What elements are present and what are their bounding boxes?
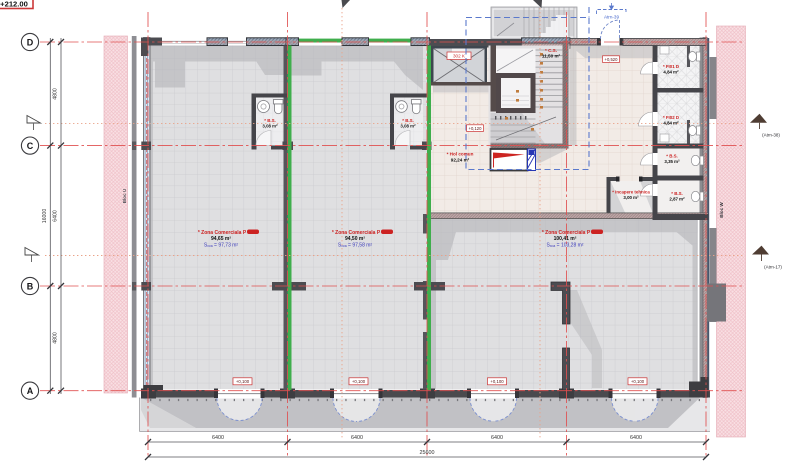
svg-text:* FI01 D: * FI01 D bbox=[663, 64, 679, 69]
svg-text:+0,100: +0,100 bbox=[236, 379, 250, 384]
svg-text:4800: 4800 bbox=[53, 332, 59, 344]
svg-text:+212.00: +212.00 bbox=[0, 0, 28, 9]
svg-text:* B.S.: * B.S. bbox=[666, 154, 677, 159]
svg-text:92,24 m²: 92,24 m² bbox=[451, 158, 470, 163]
svg-text:100,41 m²: 100,41 m² bbox=[554, 236, 577, 242]
svg-text:* C.S.: * C.S. bbox=[545, 48, 557, 53]
svg-text:6400: 6400 bbox=[53, 210, 59, 222]
svg-text:* FI02 D: * FI02 D bbox=[663, 115, 679, 120]
svg-text:Bloc W: Bloc W bbox=[719, 202, 724, 218]
svg-text:6400: 6400 bbox=[491, 435, 503, 441]
svg-text:3,35 m²: 3,35 m² bbox=[664, 159, 680, 164]
svg-text:(Atrn-38): (Atrn-38) bbox=[762, 133, 780, 138]
svg-text:Sₓₒₐ = 97,73 m²: Sₓₒₐ = 97,73 m² bbox=[204, 243, 238, 249]
svg-text:2,87 m²: 2,87 m² bbox=[669, 197, 685, 202]
svg-text:D: D bbox=[27, 37, 34, 47]
svg-text:4,84 m²: 4,84 m² bbox=[663, 121, 679, 126]
svg-text:6400: 6400 bbox=[212, 435, 224, 441]
svg-text:4,84 m²: 4,84 m² bbox=[663, 70, 679, 75]
svg-text:* B.S.: * B.S. bbox=[671, 191, 682, 196]
svg-text:+0,520: +0,520 bbox=[605, 57, 619, 62]
svg-text:B: B bbox=[27, 281, 34, 291]
svg-text:Atrn-39: Atrn-39 bbox=[604, 15, 620, 20]
svg-text:Sₓₒₐ = 97,58 m²: Sₓₒₐ = 97,58 m² bbox=[338, 243, 372, 249]
svg-text:25600: 25600 bbox=[420, 450, 435, 456]
svg-text:94,65 m²: 94,65 m² bbox=[211, 236, 231, 242]
svg-text:94,50 m²: 94,50 m² bbox=[345, 236, 365, 242]
svg-text:11,50 m²: 11,50 m² bbox=[542, 54, 561, 59]
svg-text:Sₓₒₐ = 103,28 m²: Sₓₒₐ = 103,28 m² bbox=[547, 243, 584, 249]
svg-text:C: C bbox=[27, 141, 34, 151]
svg-text:3,08 m²: 3,08 m² bbox=[262, 124, 278, 129]
svg-text:+0,100: +0,100 bbox=[490, 379, 504, 384]
svg-text:4800: 4800 bbox=[53, 88, 59, 100]
svg-text:6400: 6400 bbox=[351, 435, 363, 441]
svg-text:3,00 m²: 3,00 m² bbox=[623, 195, 639, 200]
svg-text:* B.S.: * B.S. bbox=[402, 118, 413, 123]
svg-text:A: A bbox=[27, 386, 34, 396]
svg-text:+0,100: +0,100 bbox=[352, 379, 366, 384]
svg-text:+0,120: +0,120 bbox=[469, 126, 483, 131]
svg-text:(Atrn-17): (Atrn-17) bbox=[764, 265, 782, 270]
svg-text:16000: 16000 bbox=[42, 209, 48, 224]
svg-text:* Incapere tehnica: * Incapere tehnica bbox=[612, 190, 650, 195]
svg-text:Bloc U: Bloc U bbox=[122, 188, 127, 203]
svg-text:+0,100: +0,100 bbox=[631, 379, 645, 384]
svg-text:3,08 m²: 3,08 m² bbox=[400, 124, 416, 129]
svg-text:* B.S.: * B.S. bbox=[264, 118, 275, 123]
svg-text:* Hol comun: * Hol comun bbox=[447, 152, 474, 157]
svg-text:6400: 6400 bbox=[630, 435, 642, 441]
svg-text:302 K: 302 K bbox=[453, 54, 466, 59]
